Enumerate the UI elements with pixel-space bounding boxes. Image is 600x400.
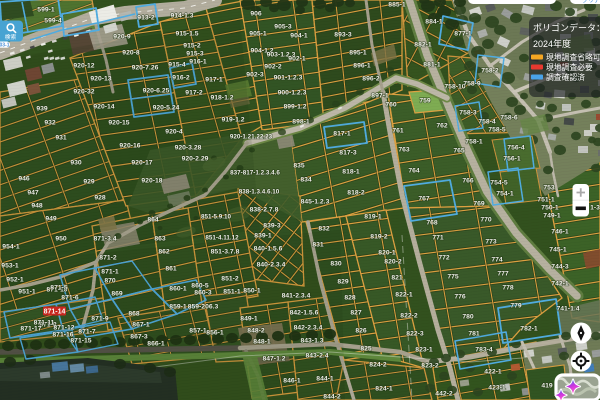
- svg-text:03-1: 03-1: [0, 42, 10, 48]
- svg-text:調査確認済: 調査確認済: [546, 72, 585, 82]
- svg-text:2024年度: 2024年度: [533, 38, 571, 49]
- svg-text:検索: 検索: [5, 33, 17, 41]
- svg-text:現地調査省略可: 現地調査省略可: [546, 52, 600, 62]
- svg-text:クリア: クリア: [582, 0, 600, 5]
- svg-text:現地調査必要: 現地調査必要: [546, 62, 593, 72]
- svg-text:ポリゴンデータ：: ポリゴンデータ：: [533, 22, 600, 33]
